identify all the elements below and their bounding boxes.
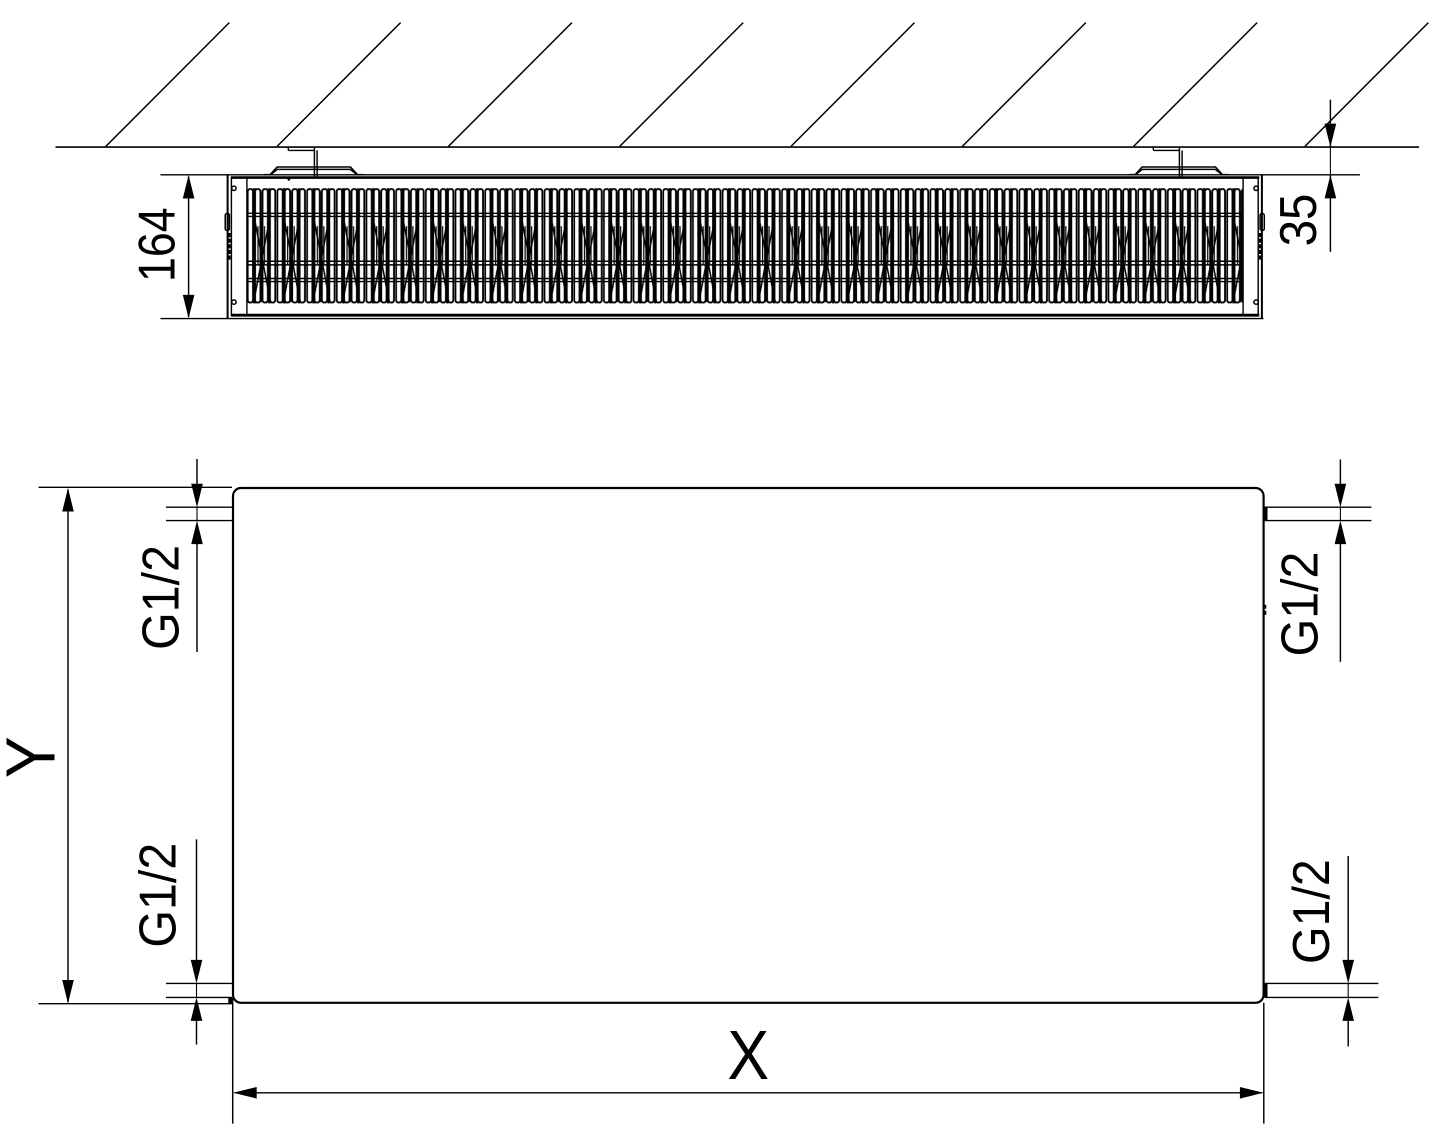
svg-text:G1/2: G1/2	[1271, 552, 1329, 657]
svg-text:X: X	[727, 1017, 769, 1095]
svg-text:G1/2: G1/2	[129, 843, 187, 948]
svg-text:164: 164	[128, 207, 186, 282]
svg-text:Y: Y	[0, 736, 70, 778]
svg-text:G1/2: G1/2	[132, 545, 190, 650]
svg-text:G1/2: G1/2	[1282, 859, 1340, 964]
svg-text:35: 35	[1269, 194, 1328, 247]
